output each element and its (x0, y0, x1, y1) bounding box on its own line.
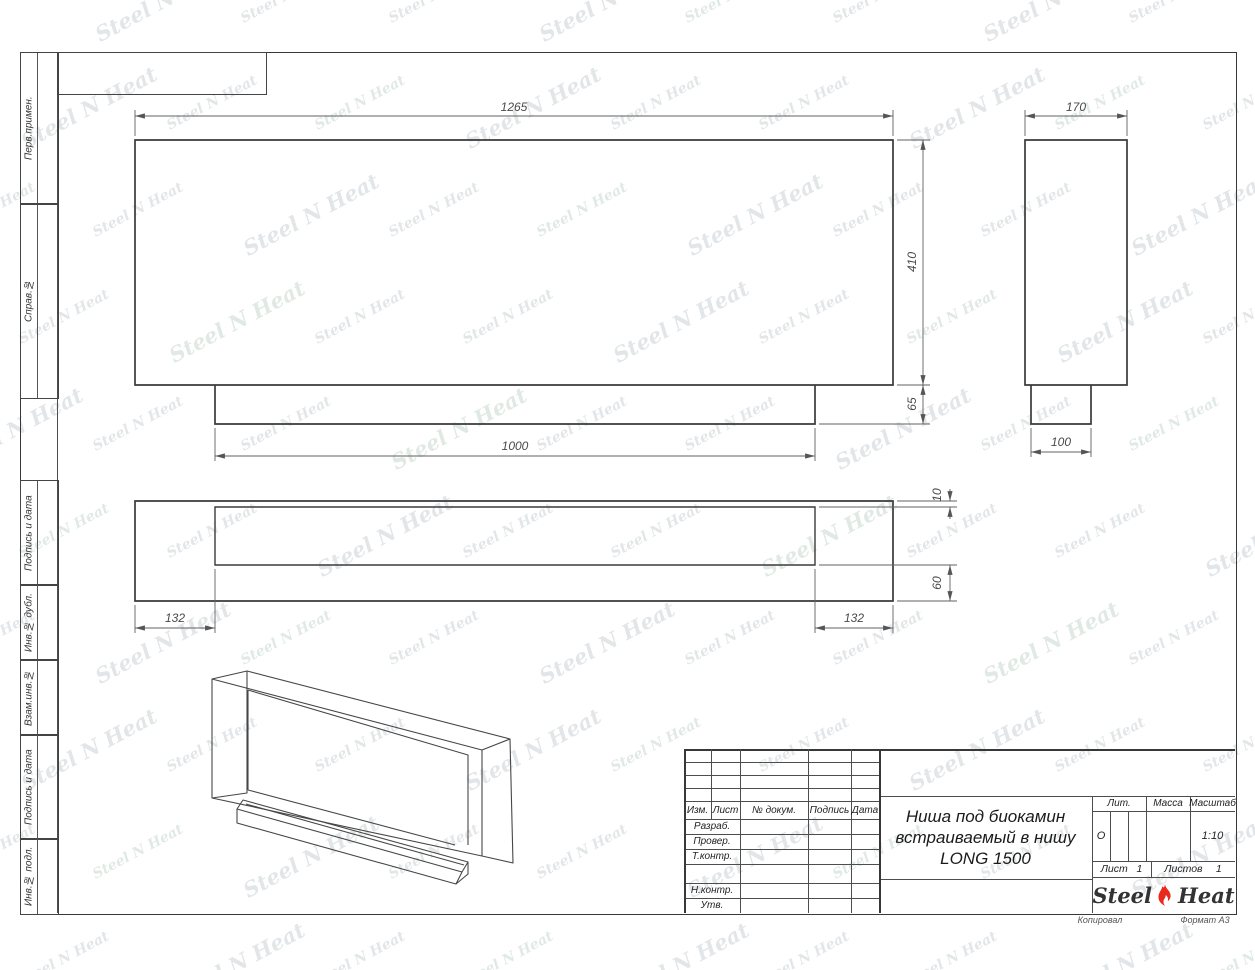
header-no-dokum: № докум. (740, 801, 808, 819)
margin-box-inv-dubl: Инв.№ дубл. (20, 584, 59, 661)
header-podpis: Подпись (808, 801, 851, 819)
sheets-label: Листов (1164, 863, 1202, 875)
lit-label: Лит. (1092, 796, 1146, 811)
margin-box-divider (37, 585, 38, 660)
row-t-kontr: Т.контр. (684, 849, 740, 864)
sheet-frame (20, 52, 1237, 915)
margin-box-divider (37, 735, 38, 839)
sheet-value: 1 (1136, 863, 1142, 875)
title-block-line (684, 864, 879, 865)
drawing-title-line-2: встраиваемый в нишу (896, 827, 1076, 848)
sheets-value: 1 (1216, 863, 1222, 875)
title-block-line (808, 749, 809, 913)
header-izm: Изм. (684, 801, 711, 819)
row-n-kontr: Н.контр. (684, 883, 740, 898)
margin-box-inv-podl: Инв.№ подл. (20, 838, 59, 915)
drawing-title-line-3: LONG 1500 (940, 848, 1031, 869)
title-block-line (1110, 811, 1111, 861)
margin-label: Инв.№ подл. (21, 839, 37, 914)
row-razrab: Разраб. (684, 819, 740, 834)
title-block-line (684, 762, 879, 763)
margin-label: Справ.№ (21, 204, 37, 398)
drawing-sheet: Steel N HeatSteel N HeatSteel N HeatStee… (0, 0, 1255, 970)
top-reference-box (57, 52, 267, 95)
scale-label: Масштаб (1190, 796, 1235, 811)
scale-value: 1:10 (1190, 811, 1235, 861)
margin-box-sprav-no: Справ.№ (20, 203, 59, 399)
sheet-label: Лист (1101, 863, 1128, 875)
title-block-line (684, 749, 1235, 751)
header-data: Дата (851, 801, 879, 819)
sheet-cell: Лист 1 (1092, 861, 1151, 877)
margin-box-vzam-inv: Взам.инв.№ (20, 659, 59, 736)
copied-label: Копировал (1055, 915, 1145, 925)
title-block-line (740, 749, 741, 913)
margin-label: Взам.инв.№ (21, 660, 37, 735)
margin-box-divider (37, 839, 38, 914)
margin-box-divider (37, 481, 38, 585)
drawing-title-line-1: Ниша под биокамин (906, 806, 1065, 827)
drawing-title: Ниша под биокамин встраиваемый в нишу LO… (879, 796, 1092, 879)
margin-label: Подпись и дата (21, 735, 37, 839)
title-block-line (851, 749, 852, 913)
margin-box-perv-primen: Перв.примен. (20, 52, 59, 205)
title-block-line (684, 775, 879, 776)
row-prover: Провер. (684, 834, 740, 849)
margin-box-divider (37, 660, 38, 735)
mass-label: Масса (1146, 796, 1190, 811)
format-label: Формат А3 (1162, 915, 1248, 925)
flame-icon (1155, 882, 1175, 908)
title-block-line (879, 879, 1092, 880)
logo-text-steel: Steel (1092, 883, 1152, 908)
margin-box-podpis-data-1: Подпись и дата (20, 480, 59, 586)
title-block-line (1128, 811, 1129, 861)
header-list: Лист (711, 801, 740, 819)
margin-box-podpis-data-2: Подпись и дата (20, 734, 59, 840)
margin-box-divider (37, 204, 38, 398)
lit-value: О (1092, 811, 1110, 861)
margin-label: Подпись и дата (21, 481, 37, 585)
row-utv: Утв. (684, 898, 740, 913)
title-block-line (684, 788, 879, 789)
logo-text-heat: Heat (1178, 883, 1235, 908)
margin-label: Инв.№ дубл. (21, 585, 37, 660)
steelheat-logo: Steel Heat (1092, 877, 1235, 913)
margin-box-divider (37, 53, 38, 204)
sheets-cell: Листов 1 (1151, 861, 1235, 877)
margin-label: Перв.примен. (21, 53, 37, 204)
